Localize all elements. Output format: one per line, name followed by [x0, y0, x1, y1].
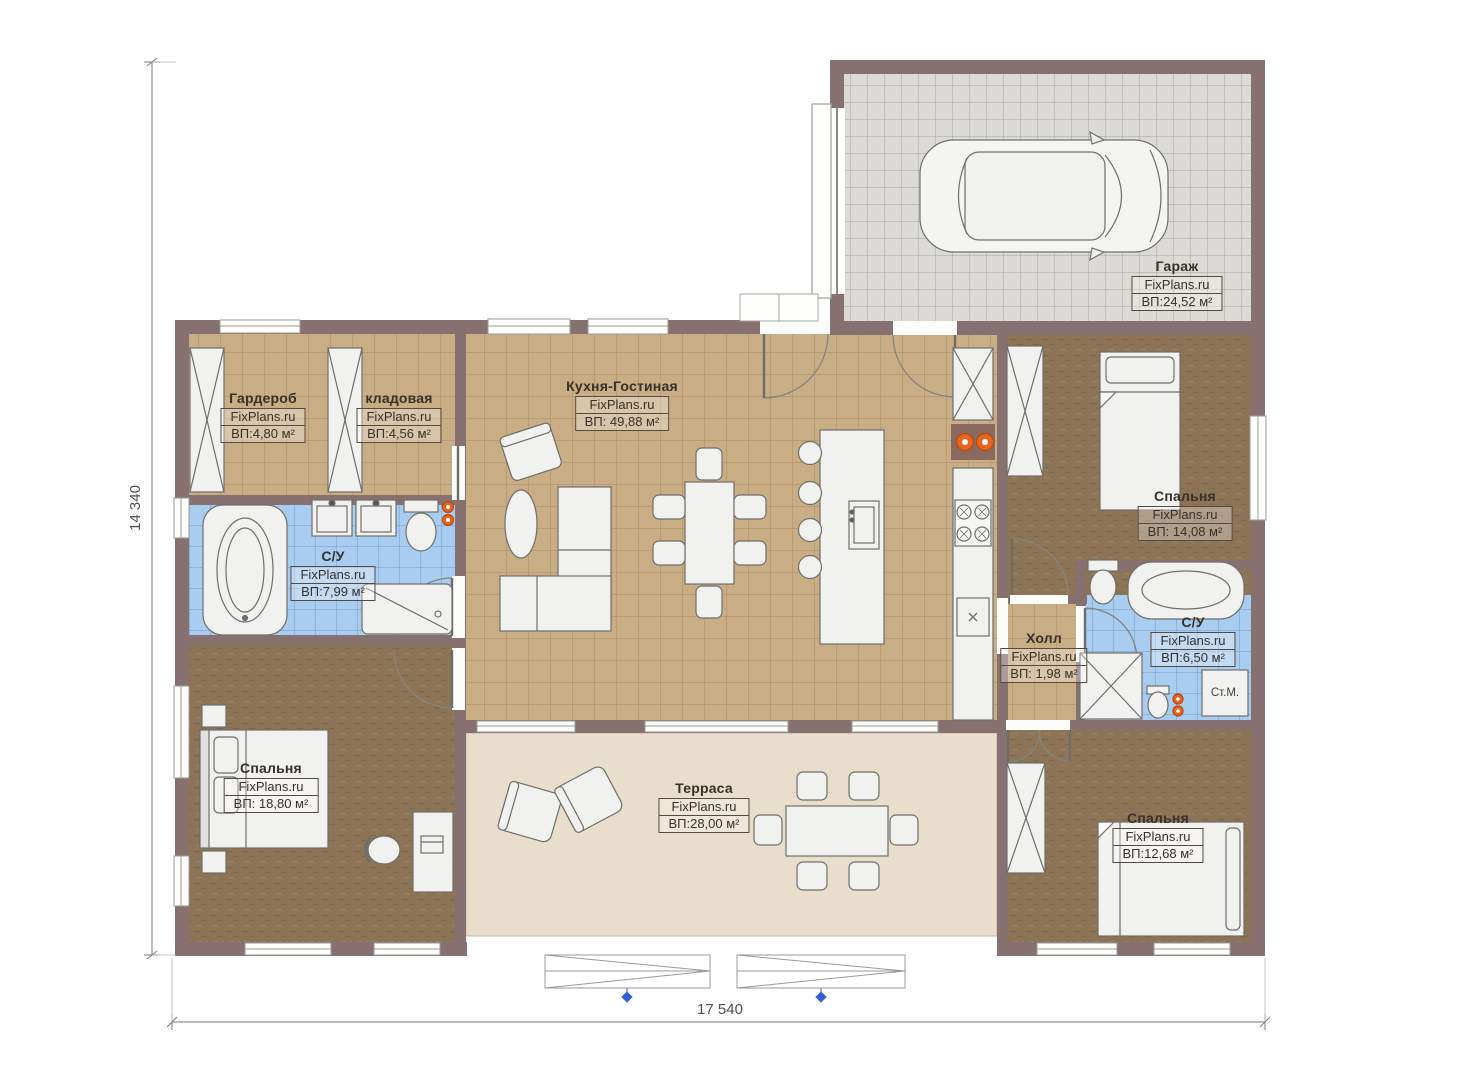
desk: [413, 812, 453, 892]
shower: [1080, 653, 1142, 719]
closet: [1007, 763, 1045, 873]
bathtub: [203, 505, 287, 635]
toilet: [404, 500, 438, 551]
bed: [1100, 352, 1180, 510]
toilet: [1147, 686, 1169, 718]
kitchen-sink: [957, 598, 989, 636]
car-icon: [920, 132, 1168, 260]
coffee-table: [505, 490, 537, 558]
dimension-width: 17 540: [697, 1001, 743, 1018]
floorplan-svg: 14 340 17 540: [0, 0, 1474, 1080]
toilet: [1088, 560, 1118, 604]
porch: [740, 294, 818, 321]
wardrobe-storage-floor: [189, 334, 455, 495]
bed: [200, 705, 328, 873]
closet: [328, 348, 362, 492]
stove: [951, 424, 995, 460]
kitchen-island: [820, 430, 884, 644]
bathtub: [1128, 562, 1244, 619]
dimension-height: 14 340: [127, 485, 144, 531]
closet: [1007, 346, 1043, 476]
hall-floor: [1008, 598, 1076, 720]
closet: [190, 348, 224, 492]
washing-machine: [1202, 670, 1248, 716]
shower: [362, 584, 452, 634]
floor-plan: 14 340 17 540 Гараж FixPlans.ruВП:24,52 …: [0, 0, 1474, 1080]
hob: [955, 500, 991, 546]
bed: [1098, 822, 1244, 936]
steps: [545, 955, 905, 988]
closet: [953, 348, 993, 420]
